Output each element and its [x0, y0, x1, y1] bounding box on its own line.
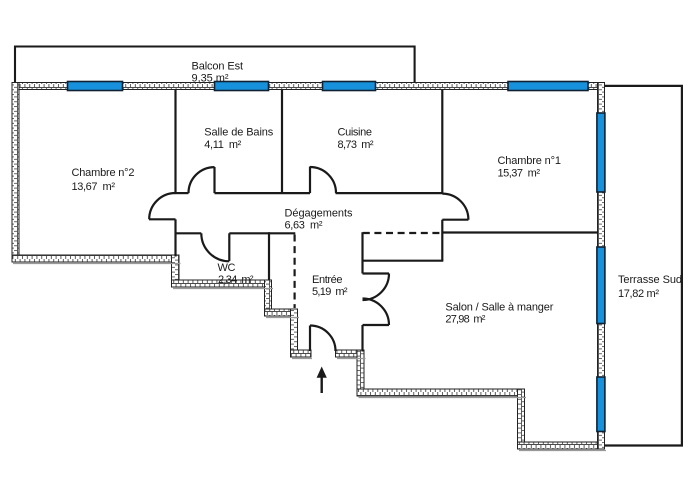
svg-text:13,67 m²: 13,67 m² — [72, 181, 116, 193]
svg-text:Balcon Est: Balcon Est — [192, 61, 244, 73]
svg-text:27,98 m²: 27,98 m² — [445, 314, 485, 326]
svg-text:Chambre n°1: Chambre n°1 — [498, 155, 562, 167]
svg-text:Cuisine: Cuisine — [338, 127, 373, 139]
svg-text:Salle de Bains: Salle de Bains — [204, 127, 273, 139]
svg-text:8,73 m²: 8,73 m² — [338, 139, 374, 151]
svg-text:Chambre n°2: Chambre n°2 — [72, 167, 135, 179]
svg-text:4,11 m²: 4,11 m² — [204, 139, 241, 151]
svg-text:WC: WC — [218, 262, 236, 274]
svg-text:Salon / Salle à manger: Salon / Salle à manger — [445, 302, 553, 314]
svg-text:15,37 m²: 15,37 m² — [498, 168, 541, 180]
svg-text:6,63 m²: 6,63 m² — [285, 220, 323, 232]
svg-text:Terrasse Sud: Terrasse Sud — [618, 274, 682, 286]
svg-text:Entrée: Entrée — [312, 274, 343, 286]
svg-text:2,34 m²: 2,34 m² — [218, 274, 254, 286]
svg-text:5,19 m²: 5,19 m² — [312, 286, 348, 298]
svg-text:Dégagements: Dégagements — [285, 208, 354, 220]
svg-text:17,82 m²: 17,82 m² — [618, 288, 659, 300]
